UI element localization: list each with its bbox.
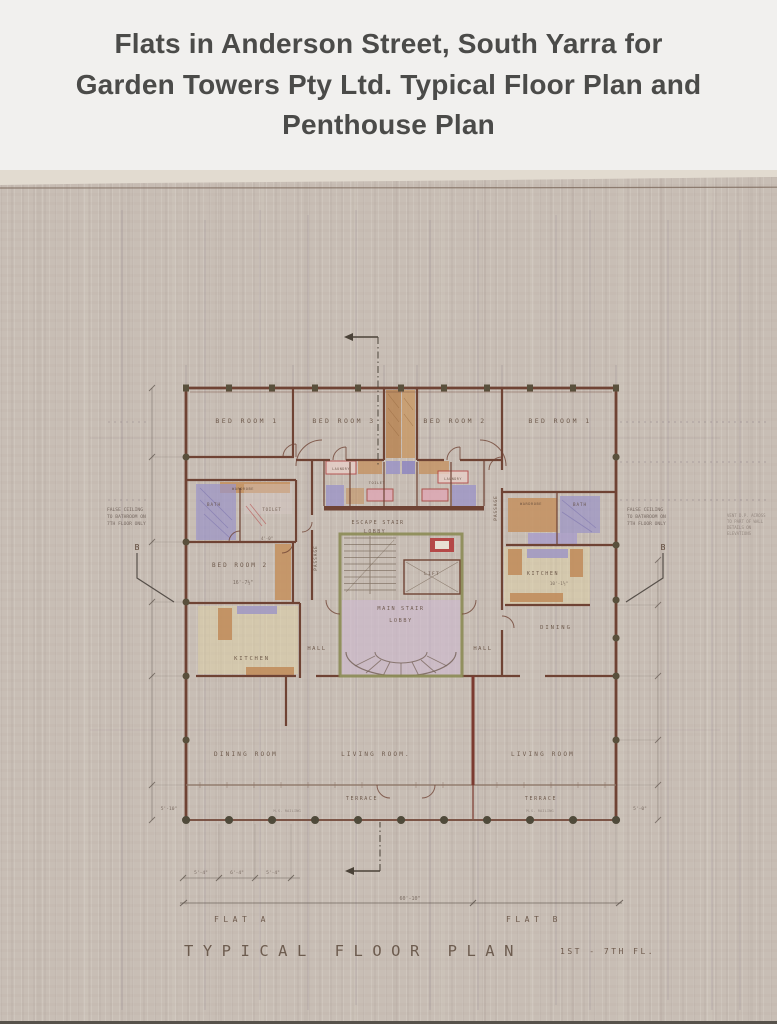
note-false-ceiling-left-2: TO BATHROOM ON [107,514,146,520]
caption-flat-a: FLAT A [214,915,270,924]
label-bedroom1-a: BED ROOM 1 [215,417,278,425]
dim-bedroom2-a: 16'-7½" [233,579,253,586]
label-railing-b: M.S. RAILING [526,808,554,813]
label-escape-stair: ESCAPE STAIR [352,520,405,526]
label-passage-a: PASSAGE [313,545,319,571]
floor-plan-drawing: BED ROOM 1 BED ROOM 3 BED ROOM 2 BED ROO… [0,170,777,1024]
caption-plan-floors: 1ST - 7TH FL. [560,947,655,956]
section-marker-b-right: B [661,543,666,552]
caption-flat-b: FLAT B [506,915,562,924]
note-false-ceiling-left-3: 7TH FLOOR ONLY [107,521,146,527]
dim-bath-a: 4'-0" [261,536,273,541]
label-lift: LIFT [424,571,440,577]
dim-d1: 5'-4" [194,870,208,876]
note-side-3: DETAILS ON [727,525,752,530]
label-terrace-a: TERRACE [346,796,378,802]
caption-plan-title: TYPICAL FLOOR PLAN [184,942,523,960]
note-side-4: ELEVATIONS [727,531,752,536]
label-bath-b: BATH [573,502,587,507]
page-title: Flats in Anderson Street, South Yarra fo… [65,24,713,146]
archive-page: Flats in Anderson Street, South Yarra fo… [0,0,777,1024]
label-living-room-b: LIVING ROOM [511,751,575,758]
label-toilet-a: TOILET [262,507,281,512]
label-railing-a: M.S. RAILING [273,808,301,813]
note-false-ceiling-left-1: FALSE CEILING [107,507,143,513]
floor-plan-scan[interactable]: BED ROOM 1 BED ROOM 3 BED ROOM 2 BED ROO… [0,170,777,1024]
label-wardrobe-b: WARDROBE [520,502,542,506]
label-dining-room: DINING ROOM [214,751,278,758]
label-kitchen-b: KITCHEN [527,571,559,577]
label-main-stair-lobby: LOBBY [389,618,413,624]
label-wardrobe-a: WARDROBE [232,487,254,491]
paper-edge [0,170,777,1024]
label-laundry-a: LAUNDRY [332,467,350,471]
label-bedroom1-b: BED ROOM 1 [528,417,591,425]
label-hall-a: HALL [307,646,326,652]
dim-d2: 6'-4" [230,870,244,876]
label-toilet-c: TOILET [369,481,386,485]
label-laundry-b: LAUNDRY [444,477,462,481]
note-false-ceiling-right-3: 7TH FLOOR ONLY [627,521,666,527]
dim-right-edge: 5'-0" [633,806,647,812]
title-header: Flats in Anderson Street, South Yarra fo… [0,0,777,170]
label-passage-b: PASSAGE [493,495,499,521]
section-b-leader-left [137,553,174,602]
section-marker-b-left: B [135,543,140,552]
label-main-stair: MAIN STAIR [377,606,424,612]
label-bedroom2-top: BED ROOM 2 [423,417,486,425]
label-dining-b: DINING [540,625,572,631]
label-escape-lobby: LOBBY [364,529,386,535]
dim-d3: 5'-4" [266,870,280,876]
note-side-1: VENT D.P. ACROSS [727,513,766,518]
dim-overall: 60'-10" [399,896,420,902]
label-living-room-a: LIVING ROOM. [341,751,411,758]
dim-kitchen-b: 10'-1½" [550,580,569,587]
note-false-ceiling-right-2: TO BATHROOM ON [627,514,666,520]
dim-left-edge: 5'-10" [161,806,178,812]
note-false-ceiling-right-1: FALSE CEILING [627,507,663,513]
section-arrow-bottom [345,867,354,875]
label-kitchen-a: KITCHEN [234,656,270,662]
label-bedroom2-a: BED ROOM 2 [212,562,268,569]
section-arrow-top [344,333,353,341]
label-bath-a: BATH [207,502,221,507]
note-side-2: TO PART OF WALL [727,519,764,524]
lift-cross [406,562,458,592]
label-bedroom3: BED ROOM 3 [312,417,375,425]
label-terrace-b: TERRACE [525,796,557,802]
label-hall-b: HALL [473,646,492,652]
